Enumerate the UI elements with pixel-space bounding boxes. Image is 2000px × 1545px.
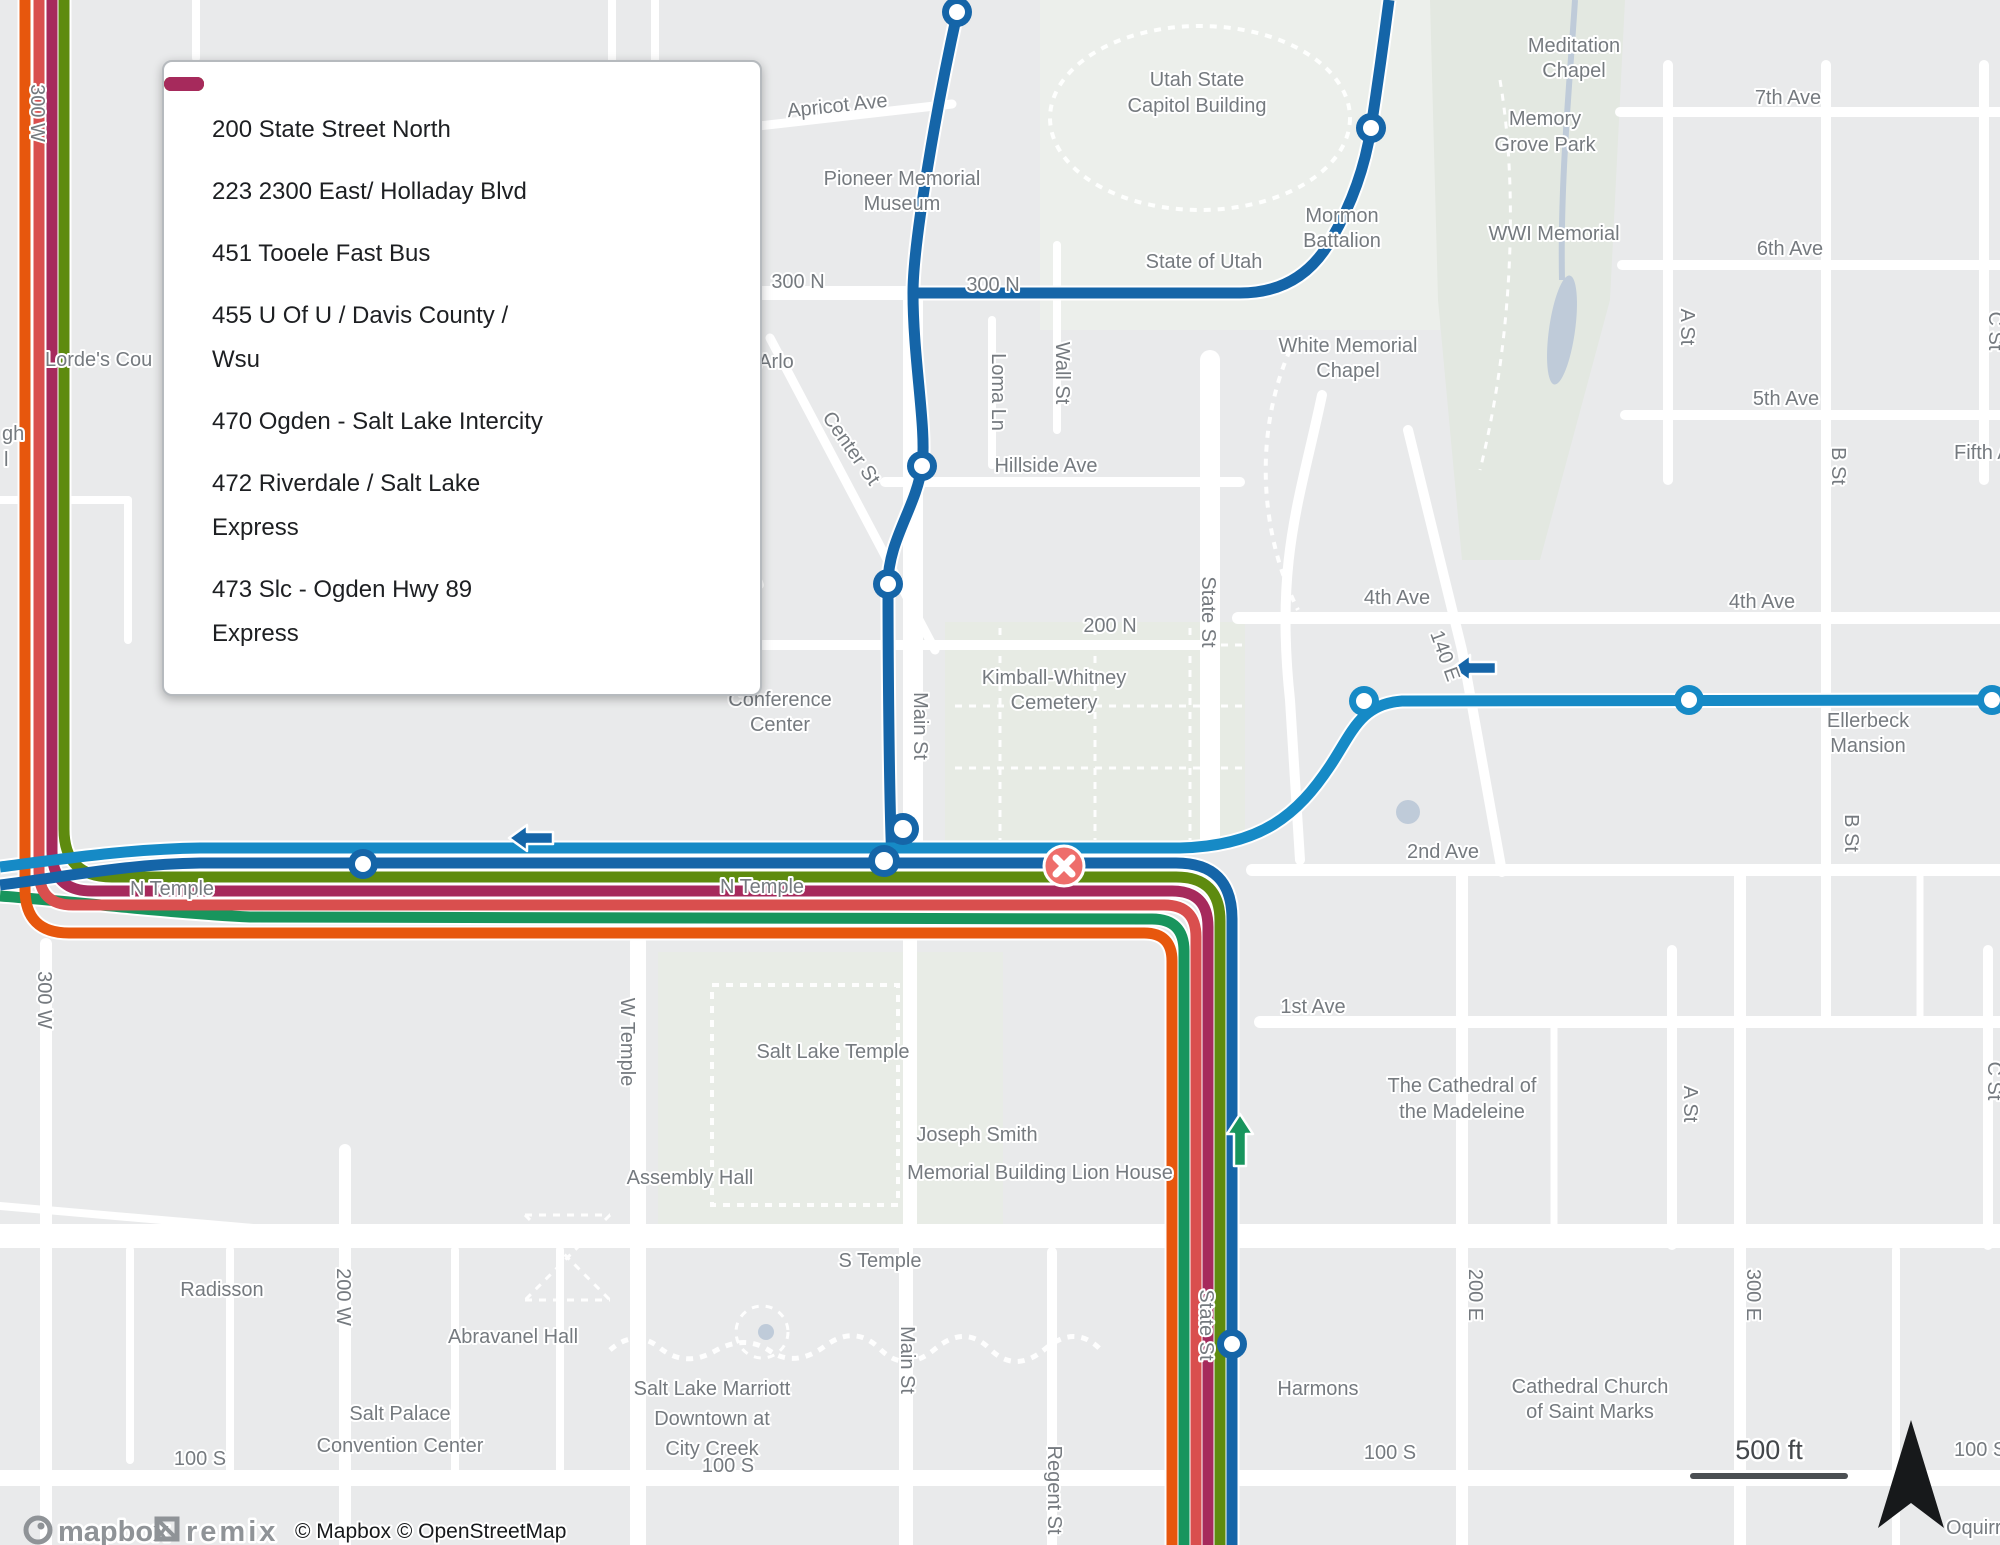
street-label: 200 E (1464, 1269, 1486, 1321)
street-label: A St (1676, 309, 1698, 346)
street-label: 300 W (33, 971, 55, 1029)
poi-label: WWI Memorial (1488, 223, 1619, 245)
street-label: 4th Ave (1729, 591, 1795, 613)
poi-label: Mormon (1305, 205, 1378, 227)
street-label: N Temple (720, 876, 804, 898)
legend-item-label: 472 Riverdale / Salt LakeExpress (212, 462, 480, 550)
poi-label: Joseph Smith (916, 1124, 1037, 1146)
poi-label: Radisson (180, 1279, 263, 1301)
remix-logo[interactable]: remix (157, 1516, 278, 1545)
street-label: C St (1983, 1062, 2000, 1101)
poi-label: Salt Lake Marriott (634, 1378, 791, 1400)
poi-label: White Memorial (1279, 335, 1418, 357)
poi-label: gh (2, 423, 24, 445)
poi-label: Battalion (1303, 230, 1381, 252)
street-label: 300 E (1742, 1269, 1764, 1321)
legend-item-223: 223 2300 East/ Holladay Blvd (212, 170, 722, 214)
stop-marker[interactable] (1356, 113, 1386, 143)
poi-label: of Saint Marks (1526, 1401, 1654, 1423)
stop-marker[interactable] (868, 845, 900, 877)
street-label: A St (1679, 1086, 1701, 1123)
street-label: C St (1984, 312, 2000, 351)
stop-marker[interactable] (907, 451, 937, 481)
street-label: Fifth Av (1954, 442, 2000, 464)
street-label: State St (1197, 576, 1219, 648)
legend-item-472: 472 Riverdale / Salt LakeExpress (212, 462, 722, 550)
poi-label: Capitol Building (1128, 95, 1267, 117)
street-label: 100 S (1954, 1439, 2000, 1461)
scale-label: 500 ft (1735, 1435, 1803, 1465)
legend-item-451: 451 Tooele Fast Bus (212, 232, 722, 276)
legend-item-label: 200 State Street North (212, 108, 451, 152)
legend-item-label: 455 U Of U / Davis County /Wsu (212, 294, 508, 382)
stop-marker[interactable] (1217, 1329, 1247, 1359)
legend-item-label: 473 Slc - Ogden Hwy 89Express (212, 568, 472, 656)
poi-label: Museum (864, 193, 941, 215)
poi-label: Utah State (1150, 69, 1245, 91)
street-label: 100 S (702, 1455, 754, 1477)
stop-marker[interactable] (942, 0, 972, 27)
street-label: 1st Ave (1280, 996, 1345, 1018)
stop-marker[interactable] (348, 849, 378, 879)
poi-label: Cathedral Church (1512, 1376, 1669, 1398)
legend-item-label: 451 Tooele Fast Bus (212, 232, 430, 276)
poi-label: Harmons (1277, 1378, 1358, 1400)
stop-marker[interactable] (887, 813, 919, 845)
poi-label: Chapel (1542, 60, 1605, 82)
stop-marker[interactable] (873, 569, 903, 599)
legend-item-label: 470 Ogden - Salt Lake Intercity (212, 400, 543, 444)
street-label: 6th Ave (1757, 238, 1823, 260)
street-label: 200 N (1083, 615, 1136, 637)
street-label: 100 S (1364, 1442, 1416, 1464)
stop-marker[interactable] (1349, 686, 1379, 716)
street-label: Loma Ln (987, 353, 1009, 431)
street-label: 2nd Ave (1407, 841, 1479, 863)
street-label: 300 N (771, 271, 824, 293)
street-label: 5th Ave (1753, 388, 1819, 410)
street-label: Main St (896, 1326, 918, 1394)
poi-label: State of Utah (1146, 251, 1263, 273)
attribution-bar: mapbox remix © Mapbox © OpenStreetMap (26, 1516, 566, 1545)
poi-label: Kimball-Whitney (982, 667, 1126, 689)
poi-label: Salt Palace (349, 1403, 450, 1425)
poi-label: Chapel (1316, 360, 1379, 382)
poi-label: l (4, 449, 8, 471)
street-label: Wall St (1051, 342, 1073, 405)
poi-label: Grove Park (1494, 134, 1596, 156)
street-label: 100 S (174, 1448, 226, 1470)
poi-label: The Cathedral of (1388, 1075, 1537, 1097)
poi-label: Convention Center (317, 1435, 484, 1457)
street-label: Main St (909, 692, 931, 760)
poi-label: Ellerbeck (1827, 710, 1910, 732)
poi-label: Memorial Building Lion House (907, 1162, 1173, 1184)
street-label: N Temple (130, 878, 214, 900)
poi-label: Mansion (1830, 735, 1906, 757)
street-label: 7th Ave (1755, 87, 1821, 109)
legend-item-455: 455 U Of U / Davis County /Wsu (212, 294, 722, 382)
attribution-text[interactable]: © Mapbox © OpenStreetMap (295, 1520, 566, 1543)
route-color-swatch (164, 77, 204, 91)
poi-label: Arlo (758, 351, 794, 373)
svg-text:remix: remix (186, 1516, 278, 1545)
street-label: W Temple (616, 998, 638, 1087)
poi-label: Assembly Hall (627, 1167, 754, 1189)
legend-item-473: 473 Slc - Ogden Hwy 89Express (212, 568, 722, 656)
svg-text:mapbox: mapbox (58, 1516, 169, 1545)
street-label: Regent St (1043, 1446, 1065, 1535)
poi-label: Lorde's Cou (45, 349, 152, 371)
route-legend: 200 State Street North 223 2300 East/ Ho… (162, 60, 762, 696)
closed-stop-marker[interactable] (1044, 846, 1084, 886)
street-label: 200 W (332, 1268, 354, 1326)
map-viewport[interactable]: Apricot Ave Pioneer Memorial Museum 300 … (0, 0, 2000, 1545)
poi-label: Downtown at (654, 1408, 770, 1430)
legend-item-label: 223 2300 East/ Holladay Blvd (212, 170, 527, 214)
street-label: S Temple (838, 1250, 921, 1272)
poi-label: Pioneer Memorial (824, 168, 981, 190)
poi-label: Cemetery (1011, 692, 1098, 714)
street-label: State St (1195, 1289, 1217, 1361)
poi-label: the Madeleine (1399, 1101, 1525, 1123)
legend-item-470: 470 Ogden - Salt Lake Intercity (212, 400, 722, 444)
poi-label: Memory (1509, 108, 1581, 130)
poi-label: Abravanel Hall (448, 1326, 578, 1348)
street-label: 300 W (26, 84, 48, 142)
street-label: B St (1840, 814, 1862, 852)
stop-marker[interactable] (1977, 685, 2000, 715)
stop-marker[interactable] (1674, 685, 1704, 715)
scale-bar-line (1690, 1473, 1848, 1479)
poi-label: Oquirrh (1946, 1517, 2000, 1539)
street-label: 4th Ave (1364, 587, 1430, 609)
street-label: B St (1827, 447, 1849, 485)
street-label: 300 N (966, 274, 1019, 296)
poi-label: Meditation (1528, 35, 1620, 57)
legend-item-200: 200 State Street North (212, 108, 722, 152)
street-label: Hillside Ave (994, 455, 1097, 477)
poi-label: Center (750, 714, 810, 736)
poi-label: Salt Lake Temple (756, 1041, 909, 1063)
